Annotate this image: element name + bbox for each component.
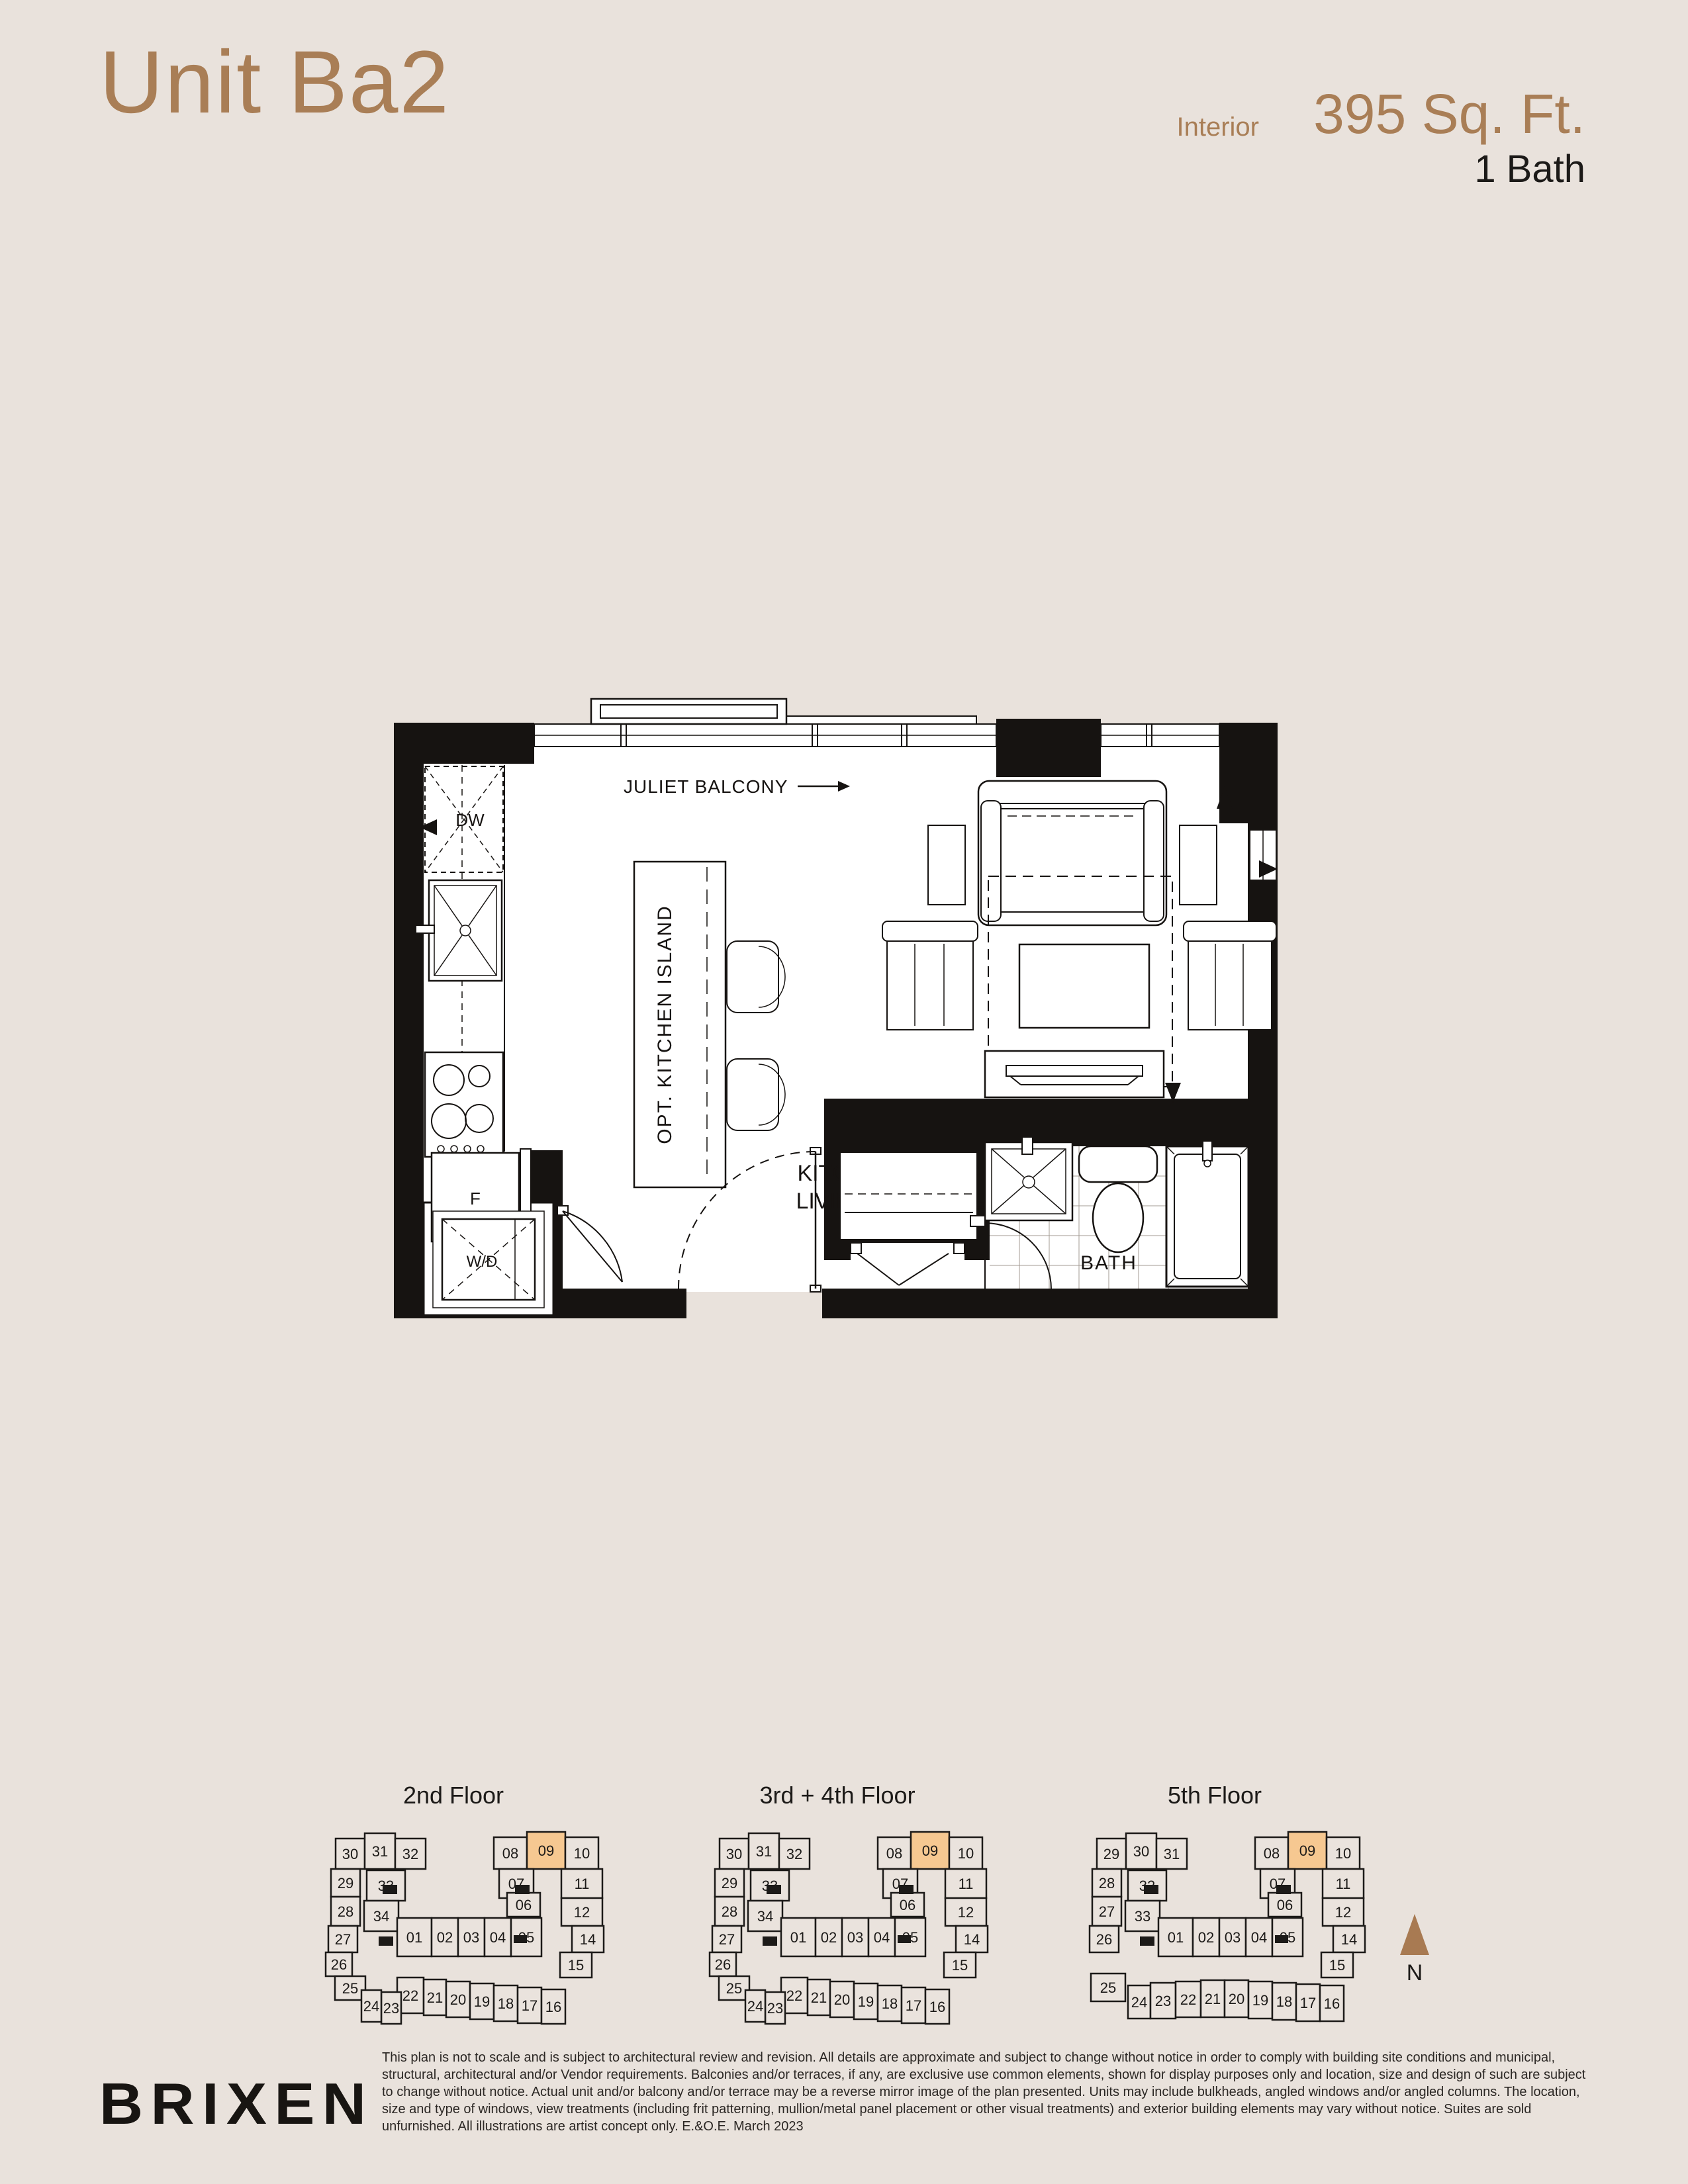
keyplan-unit-number: 26 <box>331 1956 347 1973</box>
keyplan-unit-number: 32 <box>786 1846 802 1862</box>
keyplan-unit-number: 15 <box>952 1957 968 1974</box>
dishwasher-label: DW <box>455 810 485 830</box>
keyplan-unit-number: 11 <box>959 1876 974 1892</box>
island-label: OPT. KITCHEN ISLAND <box>654 905 676 1144</box>
keyplan-unit-number: 33 <box>1135 1908 1150 1925</box>
keyplan-core <box>1275 1935 1288 1943</box>
keyplan-unit-number: 09 <box>1299 1843 1315 1859</box>
keyplan-svg-2: 2930312832273326250809100711061214150102… <box>1059 1819 1370 2030</box>
keyplan-unit-number: 16 <box>1324 1995 1340 2012</box>
keyplan-unit-number: 29 <box>338 1875 353 1891</box>
keyplan-unit-number: 30 <box>1133 1843 1149 1860</box>
keyplan-unit-number: 26 <box>1096 1931 1112 1948</box>
keyplan-unit-number: 21 <box>1205 1991 1221 2007</box>
keyplan-unit-number: 20 <box>450 1991 466 2008</box>
keyplan-unit-number: 02 <box>1198 1929 1214 1946</box>
keyplan-unit-number: 02 <box>437 1929 453 1946</box>
keyplan-unit-number: 23 <box>383 2000 399 2017</box>
keyplan-unit-number: 34 <box>373 1908 389 1925</box>
keyplan-unit-number: 22 <box>402 1987 418 2004</box>
washer-dryer-label: W/D <box>467 1253 498 1271</box>
keyplan-unit-number: 11 <box>1336 1876 1351 1892</box>
keyplan-core <box>767 1885 781 1894</box>
keyplan-unit-number: 03 <box>847 1929 863 1946</box>
keyplan-unit-number: 17 <box>906 1997 921 2014</box>
keyplan-unit-number: 19 <box>474 1993 490 2010</box>
keyplan-unit-number: 10 <box>958 1845 974 1862</box>
keyplan-core <box>899 1885 914 1894</box>
keyplan-unit-number: 28 <box>1099 1875 1115 1891</box>
keyplan-unit-number: 06 <box>1277 1897 1293 1913</box>
keyplan-unit-number: 30 <box>342 1846 358 1862</box>
keyplan-unit-number: 23 <box>1155 1993 1171 2009</box>
keyplan-unit-number: 25 <box>726 1980 742 1997</box>
keyplan-unit-number: 14 <box>964 1931 980 1948</box>
keyplan-svg-0: 3031322933283427262508091007110612141501… <box>298 1819 609 2030</box>
keyplan-unit-number: 34 <box>757 1908 773 1925</box>
keyplan-unit-number: 24 <box>747 1998 763 2015</box>
keyplan-unit-number: 01 <box>406 1929 422 1946</box>
interior-label: Interior <box>1177 113 1260 142</box>
keyplan-unit-number: 16 <box>929 1999 945 2015</box>
fridge-label: F <box>470 1189 481 1208</box>
keyplan-unit-number: 18 <box>498 1995 514 2012</box>
keyplan-unit-number: 08 <box>886 1845 902 1862</box>
compass-label: N <box>1378 1960 1451 1986</box>
compass: N <box>1378 1913 1451 1986</box>
keyplan-unit-number: 29 <box>722 1875 737 1891</box>
keyplan-unit-number: 03 <box>463 1929 479 1946</box>
keyplan-unit-number: 10 <box>1335 1845 1351 1862</box>
keyplan-unit-number: 04 <box>874 1929 890 1946</box>
keyplan-unit-number: 02 <box>821 1929 837 1946</box>
keyplan-core <box>898 1935 911 1943</box>
keyplan-unit-number: 15 <box>568 1957 584 1974</box>
keyplan-svg-1: 3031322933283427262508091007110612141501… <box>682 1819 993 2030</box>
page: { "header": { "unit_title": "Unit Ba2", … <box>0 0 1688 2184</box>
keyplan-unit-number: 25 <box>1100 1979 1116 1996</box>
keyplan-core <box>514 1935 527 1943</box>
balcony-label: JULIET BALCONY <box>624 776 788 797</box>
keyplan-unit-number: 06 <box>516 1897 532 1913</box>
keyplan-unit-number: 08 <box>1264 1845 1280 1862</box>
page-title: Unit Ba2 <box>99 32 450 133</box>
keyplan-unit-number: 04 <box>490 1929 506 1946</box>
keyplan-unit-number: 09 <box>538 1843 554 1859</box>
keyplan-unit-number: 20 <box>1229 1991 1244 2007</box>
keyplan-unit-number: 15 <box>1329 1957 1345 1974</box>
keyplan-unit-number: 10 <box>574 1845 590 1862</box>
keyplan-core <box>763 1936 777 1946</box>
keyplan-unit-number: 31 <box>756 1843 772 1860</box>
keyplan-unit-number: 04 <box>1251 1929 1267 1946</box>
keyplan-unit-number: 29 <box>1103 1846 1119 1862</box>
keyplan-unit-number: 24 <box>1131 1994 1147 2011</box>
keyplan-unit-number: 17 <box>1300 1995 1316 2011</box>
keyplan-unit-number: 27 <box>719 1931 735 1948</box>
keyplan-unit-number: 30 <box>726 1846 742 1862</box>
keyplan-unit-number: 26 <box>715 1956 731 1973</box>
keyplan-unit-number: 21 <box>427 1989 443 2006</box>
keyplan-unit-number: 12 <box>958 1904 974 1921</box>
bath-count: 1 Bath <box>1474 147 1585 191</box>
keyplan-unit-number: 21 <box>811 1989 827 2006</box>
brand-logo: BRIXEN <box>99 2070 373 2138</box>
keyplan-core <box>1140 1936 1154 1946</box>
keyplan-unit-number: 23 <box>767 2000 783 2017</box>
keyplan-unit-number: 27 <box>1099 1903 1115 1920</box>
keyplan-unit-number: 20 <box>834 1991 850 2008</box>
keyplan-unit-number: 18 <box>882 1995 898 2012</box>
floorplan-drawing: JULIET BALCONY DW F OPT. KIT <box>391 690 1278 1335</box>
keyplan-unit-number: 14 <box>1341 1931 1357 1948</box>
disclaimer-text: This plan is not to scale and is subject… <box>382 2049 1588 2135</box>
keyplan-title-3rd-4th-floor: 3rd + 4th Floor <box>682 1782 993 1809</box>
keyplan-unit-number: 22 <box>786 1987 802 2004</box>
keyplan-core <box>1276 1885 1291 1894</box>
keyplan-unit-number: 08 <box>502 1845 518 1862</box>
keyplan-unit-number: 31 <box>372 1843 388 1860</box>
keyplan-unit-number: 17 <box>522 1997 538 2014</box>
keyplan-unit-number: 32 <box>402 1846 418 1862</box>
keyplan-title-2nd-floor: 2nd Floor <box>298 1782 609 1809</box>
keyplan-unit-number: 24 <box>363 1998 379 2015</box>
north-arrow-icon <box>1395 1913 1434 1956</box>
keyplan-unit-number: 11 <box>575 1876 590 1892</box>
keyplan-unit-number: 14 <box>580 1931 596 1948</box>
keyplan-unit-number: 28 <box>338 1903 353 1920</box>
keyplan-unit-number: 18 <box>1276 1993 1292 2010</box>
keyplan-unit-number: 01 <box>790 1929 806 1946</box>
keyplan-unit-number: 09 <box>922 1843 938 1859</box>
keyplan-unit-number: 27 <box>335 1931 351 1948</box>
keyplan-unit-number: 25 <box>342 1980 358 1997</box>
keyplan-unit-number: 03 <box>1225 1929 1241 1946</box>
keyplan-unit-number: 31 <box>1164 1846 1180 1862</box>
bath-label: BATH <box>1080 1252 1137 1274</box>
keyplan-unit-number: 28 <box>722 1903 737 1920</box>
keyplan-unit-number: 16 <box>545 1999 561 2015</box>
area-value: 395 Sq. Ft. <box>1313 82 1585 146</box>
keyplan-unit-number: 19 <box>1252 1992 1268 2009</box>
keyplan-core <box>379 1936 393 1946</box>
keyplan-unit-number: 01 <box>1168 1929 1184 1946</box>
keyplan-unit-number: 12 <box>574 1904 590 1921</box>
keyplan-unit-number: 12 <box>1335 1904 1351 1921</box>
keyplan-core <box>1144 1885 1158 1894</box>
keyplan-core <box>515 1885 530 1894</box>
keyplan-unit-number: 22 <box>1180 1991 1196 2008</box>
keyplan-title-5th-floor: 5th Floor <box>1059 1782 1370 1809</box>
keyplan-unit-number: 06 <box>900 1897 915 1913</box>
keyplan-core <box>383 1885 397 1894</box>
keyplan-unit-number: 19 <box>858 1993 874 2010</box>
